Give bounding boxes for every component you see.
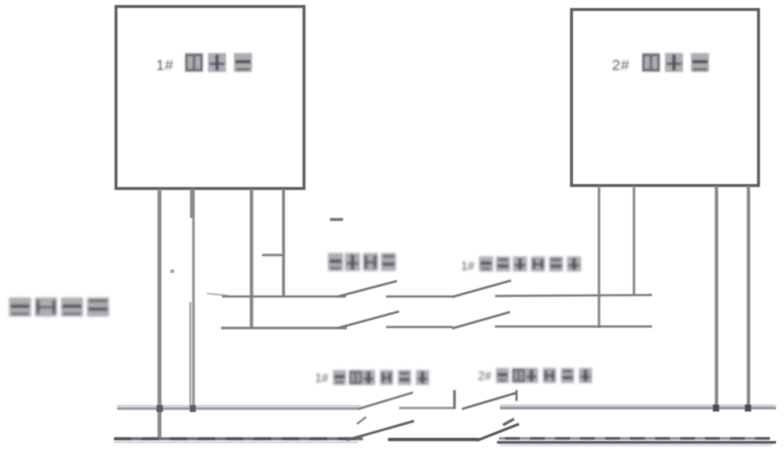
svg-text:1#: 1# [156,57,174,74]
svg-text:1#: 1# [461,259,475,273]
svg-text:2#: 2# [478,369,492,383]
svg-text:1#: 1# [315,371,329,385]
svg-text:2#: 2# [612,57,630,74]
